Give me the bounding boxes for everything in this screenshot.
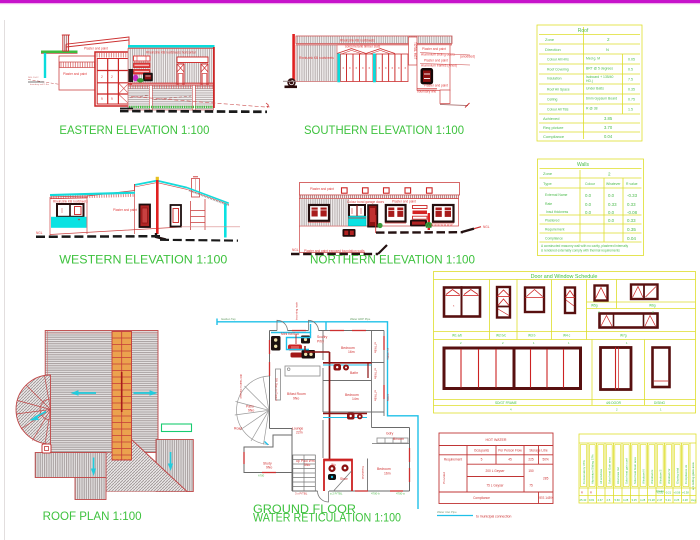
svg-text:External Name: External Name <box>545 193 568 197</box>
svg-text:Zone: Zone <box>545 37 555 42</box>
svg-text:16m: 16m <box>384 472 391 476</box>
svg-text:9No: 9No <box>293 397 299 401</box>
svg-text:3.25: 3.25 <box>674 498 680 502</box>
svg-text:HD.j: HD.j <box>586 79 593 83</box>
svg-text:Per Person Flow: Per Person Flow <box>498 448 522 452</box>
svg-text:Whatever: Whatever <box>606 182 621 186</box>
svg-text:NGL 104.2: NGL 104.2 <box>28 77 39 79</box>
svg-text:boundary wall 1.8m: boundary wall 1.8m <box>30 83 49 86</box>
svg-text:Provided: Provided <box>442 472 446 484</box>
svg-text:W6g: W6g <box>649 304 656 308</box>
svg-text:Door and Window Schedule: Door and Window Schedule <box>531 274 598 280</box>
svg-text:0.0: 0.0 <box>608 218 615 223</box>
svg-text:W1 a/b: W1 a/b <box>452 334 462 338</box>
svg-text:0.75: 0.75 <box>628 98 635 102</box>
svg-text:Plastered: Plastered <box>545 219 559 223</box>
svg-text:74.28: 74.28 <box>648 498 655 502</box>
svg-text:Aluminium Sliding 37%: Aluminium Sliding 37% <box>591 454 595 484</box>
svg-text:Rheinzink KB roofsheets: Rheinzink KB roofsheets <box>53 199 88 203</box>
svg-text:B/fast Room: B/fast Room <box>287 392 306 396</box>
svg-text:Solar heat Gain area: Solar heat Gain area <box>633 457 637 484</box>
svg-text:B/room: B/room <box>393 437 404 441</box>
svg-text:Med g. M: Med g. M <box>586 57 600 61</box>
svg-text:Garden Tap: Garden Tap <box>221 317 236 321</box>
svg-text:6mm Gypsum Board: 6mm Gypsum Board <box>586 97 617 101</box>
svg-text:Compliance ok: Compliance ok <box>684 464 688 484</box>
svg-text:0.0: 0.0 <box>608 193 615 198</box>
svg-text:4.28: 4.28 <box>623 498 629 502</box>
svg-text:300 Wall to Parapet: 300 Wall to Parapet <box>239 374 243 399</box>
svg-text:D/SING: D/SING <box>654 401 666 405</box>
svg-text:R @ 38: R @ 38 <box>586 107 598 111</box>
svg-text:DN Stair to Parent: DN Stair to Parent <box>275 378 279 401</box>
svg-text:3.25: 3.25 <box>632 498 638 502</box>
svg-text:5: 5 <box>481 458 483 462</box>
svg-text:Occupants: Occupants <box>474 448 490 452</box>
svg-text:75 L Geyser: 75 L Geyser <box>486 484 504 488</box>
svg-text:W2 b/c: W2 b/c <box>496 334 506 338</box>
svg-text:Plaster and paint: Plaster and paint <box>310 187 334 191</box>
svg-text:ROOF PLAN 1:100: ROOF PLAN 1:100 <box>43 509 142 523</box>
svg-text:BRT @ 5 degrees: BRT @ 5 degrees <box>586 67 613 71</box>
svg-text:a 2 P/TBL: a 2 P/TBL <box>330 492 343 496</box>
svg-text:Colour: Colour <box>585 182 596 186</box>
svg-text:Water HDP Pipe: Water HDP Pipe <box>350 317 371 321</box>
svg-text:16m: 16m <box>348 350 355 354</box>
svg-text:Req picture: Req picture <box>543 125 564 130</box>
svg-text:Plaster and paint: Plaster and paint <box>113 208 137 212</box>
svg-text:WATER RETICULATION 1:100: WATER RETICULATION 1:100 <box>253 511 401 525</box>
svg-text:4.67: 4.67 <box>598 498 604 502</box>
svg-text:(anodised): (anodised) <box>460 55 475 59</box>
svg-text:0.04: 0.04 <box>627 236 636 241</box>
svg-text:a:TTWBa: a:TTWBa <box>374 368 378 380</box>
svg-text:TOTAL HGT: TOTAL HGT <box>413 42 417 60</box>
svg-text:2.47: 2.47 <box>657 498 663 502</box>
svg-text:1.5: 1.5 <box>628 108 633 112</box>
svg-text:Colour All TBs: Colour All TBs <box>547 108 569 112</box>
svg-text:Storage Litre: Storage Litre <box>529 448 547 452</box>
svg-text:-0.21: -0.21 <box>665 491 672 495</box>
svg-text:4700a: 4700a <box>386 394 390 402</box>
svg-text:+0.38: +0.38 <box>682 491 689 495</box>
svg-text:Aluminium sliding doors: Aluminium sliding doors <box>421 53 455 57</box>
svg-text:9.81: 9.81 <box>589 498 595 502</box>
svg-text:Solar heat gain coef: Solar heat gain coef <box>625 458 629 484</box>
svg-text:225: 225 <box>528 458 534 462</box>
svg-text:Solar heat Gain area: Solar heat Gain area <box>608 457 612 484</box>
svg-text:W5g: W5g <box>591 304 598 308</box>
svg-text:w w w w w w w: w w w w w w w <box>431 223 453 227</box>
svg-text:Windows N: Windows N <box>642 469 646 484</box>
svg-text:Colour All HVs: Colour All HVs <box>547 58 569 62</box>
svg-text:Gdry: Gdry <box>386 432 394 436</box>
svg-text:Ceiling: Ceiling <box>547 98 557 102</box>
svg-text:WESTERN ELEVATION 1:100: WESTERN ELEVATION 1:100 <box>59 253 227 267</box>
svg-text:Compliance: Compliance <box>473 496 490 500</box>
svg-text:Colour bond garage doors: Colour bond garage doors <box>347 200 384 204</box>
svg-text:h700: h700 <box>258 474 265 478</box>
svg-text:YES 145%: YES 145% <box>538 496 554 500</box>
svg-text:Requirement: Requirement <box>444 458 462 462</box>
svg-text:4/6 DOOR: 4/6 DOOR <box>606 401 622 405</box>
svg-text:0.04: 0.04 <box>604 134 613 139</box>
svg-text:0.5: 0.5 <box>628 68 633 72</box>
svg-text:Avg: Avg <box>691 498 696 502</box>
svg-text:W7g: W7g <box>620 334 627 338</box>
svg-text:4.28: 4.28 <box>683 498 689 502</box>
svg-text:0.05: 0.05 <box>628 58 635 62</box>
svg-text:NORTHERN ELEVATION 1:100: NORTHERN ELEVATION 1:100 <box>310 253 475 267</box>
svg-text:N: N <box>606 47 609 52</box>
svg-text:Plaster and paint: Plaster and paint <box>422 47 446 51</box>
svg-text:W4 c: W4 c <box>563 334 571 338</box>
svg-text:75: 75 <box>529 484 533 488</box>
svg-text:Bedroom: Bedroom <box>377 467 391 471</box>
svg-text:NGL: NGL <box>483 225 490 229</box>
svg-text:Shwr: Shwr <box>340 477 349 481</box>
svg-text:Wc: Wc <box>331 463 336 467</box>
svg-text:Plaster and paint: Plaster and paint <box>392 200 416 204</box>
svg-text:a:TTWBa: a:TTWBa <box>374 390 378 402</box>
svg-text:22m: 22m <box>296 431 303 435</box>
svg-text:Windows S: Windows S <box>659 469 663 484</box>
svg-text:0.0: 0.0 <box>585 193 592 198</box>
svg-text:4700-b: 4700-b <box>371 492 380 496</box>
svg-text:2: 2 <box>608 172 611 177</box>
svg-text:2: 2 <box>607 37 610 42</box>
svg-text:0.0: 0.0 <box>585 210 592 215</box>
svg-text:0.0: 0.0 <box>608 210 615 215</box>
svg-text:Windows E: Windows E <box>650 469 654 484</box>
svg-text:Road: Road <box>234 427 242 431</box>
svg-text:200 L Geyser: 200 L Geyser <box>485 469 505 473</box>
svg-text:0.33: 0.33 <box>608 202 617 207</box>
svg-text:5.21: 5.21 <box>666 498 672 502</box>
svg-text:boundary line: boundary line <box>417 90 436 94</box>
svg-text:Direction: Direction <box>545 47 561 52</box>
svg-text:4700-a: 4700-a <box>396 492 405 496</box>
svg-text:9No: 9No <box>266 466 272 470</box>
svg-text:solid meranti timber slats: solid meranti timber slats <box>345 45 381 49</box>
svg-text:HOT WATER: HOT WATER <box>485 438 506 442</box>
svg-text:& rendered externally comply w: & rendered externally comply with therma… <box>541 249 620 253</box>
svg-text:EASTERN ELEVATION 1:100: EASTERN ELEVATION 1:100 <box>59 123 209 137</box>
svg-text:Plaster and paint: Plaster and paint <box>84 47 108 51</box>
svg-text:Insulation: Insulation <box>547 77 562 81</box>
svg-text:3.85: 3.85 <box>604 116 613 121</box>
svg-text:Rate: Rate <box>545 202 552 206</box>
svg-text:Bathr: Bathr <box>350 371 359 375</box>
svg-text:a 1 cutting glass area: a 1 cutting glass area <box>691 462 695 490</box>
svg-text:Water inlet Pipe: Water inlet Pipe <box>437 510 457 514</box>
svg-text:incoming main: incoming main <box>295 302 299 320</box>
svg-text:Insul thickness: Insul thickness <box>546 210 569 214</box>
svg-text:3 x P/TBL: 3 x P/TBL <box>295 492 308 496</box>
svg-text:Conservatory 37%: Conservatory 37% <box>582 460 586 484</box>
svg-text:2.5: 2.5 <box>607 498 611 502</box>
svg-text:5.60: 5.60 <box>615 498 621 502</box>
svg-text:7.5: 7.5 <box>628 78 633 82</box>
svg-text:-0.33: -0.33 <box>627 193 638 198</box>
svg-text:2 x 4700a: 2 x 4700a <box>386 348 390 360</box>
svg-text:Aluminium frames (Anod): Aluminium frames (Anod) <box>421 64 457 68</box>
svg-text:Mini Kit/Scu: Mini Kit/Scu <box>281 332 299 336</box>
svg-text:0.0: 0.0 <box>585 202 592 207</box>
svg-text:25.40: 25.40 <box>580 498 587 502</box>
svg-text:Rheinzink KB roofsheets: Rheinzink KB roofsheets <box>340 39 375 43</box>
svg-text:R: R <box>581 491 583 495</box>
svg-text:Glazing total: Glazing total <box>676 468 680 484</box>
svg-text:R value: R value <box>626 182 638 186</box>
svg-text:-0.08: -0.08 <box>627 210 638 215</box>
svg-text:NGL: NGL <box>36 231 43 235</box>
svg-text:150: 150 <box>528 469 534 473</box>
svg-text:Towels/tub: Towels/tub <box>361 466 365 480</box>
svg-text:Requirement: Requirement <box>545 228 564 232</box>
svg-text:Zone: Zone <box>543 171 553 176</box>
svg-text:P/try: P/try <box>317 340 324 344</box>
svg-text:to municipal connection: to municipal connection <box>476 514 512 518</box>
svg-text:Compliance: Compliance <box>543 134 565 139</box>
svg-text:9: 9 <box>101 97 103 101</box>
svg-text:0.35: 0.35 <box>628 88 635 92</box>
svg-text:SOUTHERN ELEVATION 1:100: SOUTHERN ELEVATION 1:100 <box>304 123 464 137</box>
svg-text:285: 285 <box>543 477 549 481</box>
svg-text:0.35: 0.35 <box>627 227 636 232</box>
svg-text:45: 45 <box>508 458 512 462</box>
svg-text:Rheinzink KB roofsheets: Rheinzink KB roofsheets <box>299 56 334 60</box>
svg-text:Plaster and paint: Plaster and paint <box>424 59 448 63</box>
svg-text:Under Batts: Under Batts <box>586 87 604 91</box>
svg-text:SD/GT FRAME: SD/GT FRAME <box>495 401 517 405</box>
svg-text:Areas: Areas <box>656 489 664 493</box>
svg-text:3.70: 3.70 <box>604 125 613 130</box>
svg-text:4.28: 4.28 <box>640 498 646 502</box>
svg-text:Plaster and paint: Plaster and paint <box>424 84 448 88</box>
svg-text:Roof: Roof <box>578 28 589 34</box>
svg-text:Rheinzink KB roofsheets horizo: Rheinzink KB roofsheets horizontal <box>146 50 196 54</box>
svg-text:Windows W: Windows W <box>667 468 671 484</box>
svg-text:Type: Type <box>543 181 552 186</box>
svg-text:Achieved: Achieved <box>543 116 559 121</box>
svg-text:W3 b: W3 b <box>528 334 536 338</box>
svg-text:NGL: NGL <box>292 248 299 252</box>
svg-text:9: 9 <box>111 97 113 101</box>
svg-text:Walls: Walls <box>577 162 590 168</box>
svg-text:14m: 14m <box>352 397 359 401</box>
svg-text:2: 2 <box>111 75 113 79</box>
svg-text:R: R <box>590 491 592 495</box>
svg-text:Scu/lry: Scu/lry <box>317 335 328 339</box>
svg-text:+0.56: +0.56 <box>674 491 681 495</box>
svg-text:0.33: 0.33 <box>627 202 636 207</box>
svg-text:A constructed masonry wall wit: A constructed masonry wall with no cavit… <box>541 244 629 248</box>
svg-text:9No: 9No <box>248 409 254 413</box>
svg-text:total area m2: total area m2 <box>616 467 620 484</box>
svg-text:a:TTWBa: a:TTWBa <box>374 342 378 354</box>
svg-text:2: 2 <box>101 75 103 79</box>
svg-text:Plaster and paint: Plaster and paint <box>63 72 87 76</box>
svg-text:Roof Covering: Roof Covering <box>547 68 569 72</box>
svg-text:Compliance: Compliance <box>545 237 563 241</box>
svg-text:up: up <box>296 459 300 463</box>
svg-text:0.33: 0.33 <box>627 218 636 223</box>
svg-text:All windows: All windows <box>599 468 603 484</box>
svg-text:5No: 5No <box>304 463 310 467</box>
svg-text:50%: 50% <box>543 458 550 462</box>
svg-text:Roof Air Space: Roof Air Space <box>547 88 570 92</box>
